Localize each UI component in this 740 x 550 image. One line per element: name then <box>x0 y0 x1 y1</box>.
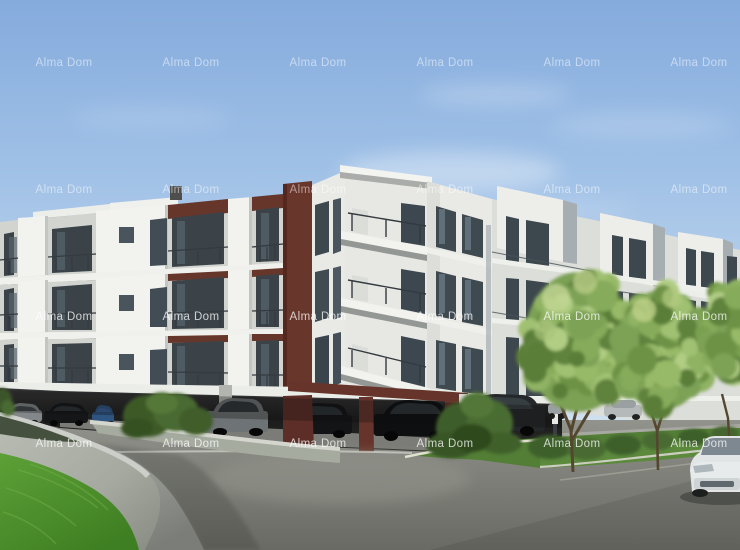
svg-text:Alma Dom: Alma Dom <box>671 57 728 69</box>
svg-text:Alma Dom: Alma Dom <box>36 438 93 450</box>
svg-text:Alma Dom: Alma Dom <box>163 438 220 450</box>
svg-text:Alma Dom: Alma Dom <box>36 57 93 69</box>
svg-text:Alma Dom: Alma Dom <box>163 311 220 323</box>
svg-text:Alma Dom: Alma Dom <box>544 438 601 450</box>
svg-text:Alma Dom: Alma Dom <box>163 57 220 69</box>
svg-text:Alma Dom: Alma Dom <box>163 184 220 196</box>
svg-text:Alma Dom: Alma Dom <box>417 57 474 69</box>
svg-text:Alma Dom: Alma Dom <box>671 438 728 450</box>
svg-text:Alma Dom: Alma Dom <box>417 184 474 196</box>
svg-text:Alma Dom: Alma Dom <box>544 184 601 196</box>
svg-text:Alma Dom: Alma Dom <box>36 311 93 323</box>
svg-text:Alma Dom: Alma Dom <box>671 184 728 196</box>
svg-text:Alma Dom: Alma Dom <box>290 311 347 323</box>
svg-text:Alma Dom: Alma Dom <box>36 184 93 196</box>
svg-text:Alma Dom: Alma Dom <box>290 184 347 196</box>
svg-text:Alma Dom: Alma Dom <box>290 57 347 69</box>
svg-text:Alma Dom: Alma Dom <box>544 311 601 323</box>
svg-text:Alma Dom: Alma Dom <box>417 311 474 323</box>
svg-text:Alma Dom: Alma Dom <box>290 438 347 450</box>
svg-text:Alma Dom: Alma Dom <box>544 57 601 69</box>
svg-text:Alma Dom: Alma Dom <box>671 311 728 323</box>
svg-text:Alma Dom: Alma Dom <box>417 438 474 450</box>
